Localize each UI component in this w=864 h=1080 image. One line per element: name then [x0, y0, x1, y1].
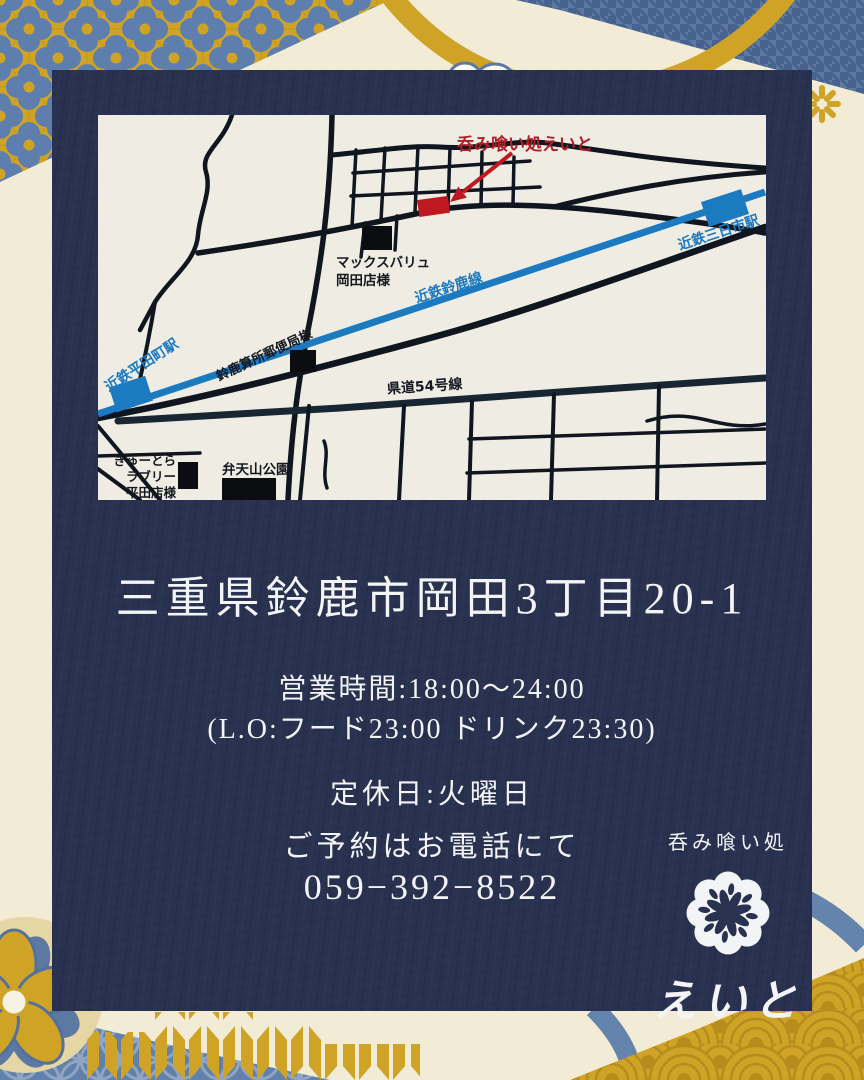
hours-block: 営業時間:18:00〜24:00 (L.O:フード23:00 ドリンク23:30…: [52, 670, 812, 750]
gyutora-building: [178, 462, 198, 489]
shop-logo: 呑み喰い処: [652, 826, 804, 1029]
map-title: 呑み喰い処えいと: [456, 134, 593, 155]
gyutora-label-1: ぎゅーとら: [114, 453, 176, 468]
blue-arc-right: [806, 901, 864, 945]
park-area: [222, 478, 276, 500]
address-text: 三重県鈴鹿市岡田3丁目20-1: [52, 562, 812, 626]
flyer: 呑み喰い処えいと マックスバリュ 岡田店様 近鉄三日市駅 近鉄鈴鹿線 近鉄平田町…: [0, 0, 864, 1080]
maxvalu-label-1: マックスバリュ: [336, 255, 430, 271]
restaurant-marker: [417, 196, 450, 217]
gyutora-label-2: ラブリー: [126, 469, 176, 484]
hours-line-1: 営業時間:18:00〜24:00: [52, 670, 812, 710]
park-label: 弁天山公園: [222, 461, 290, 478]
hours-line-2: (L.O:フード23:00 ドリンク23:30): [52, 710, 812, 750]
maxvalu-label-2: 岡田店様: [336, 272, 390, 289]
logo-name: えいと: [652, 965, 804, 1029]
yagasuri-pattern-block: [86, 1012, 420, 1080]
access-map: 呑み喰い処えいと マックスバリュ 岡田店様 近鉄三日市駅 近鉄鈴鹿線 近鉄平田町…: [98, 115, 766, 500]
info-card: 呑み喰い処えいと マックスバリュ 岡田店様 近鉄三日市駅 近鉄鈴鹿線 近鉄平田町…: [52, 70, 812, 1011]
closed-day-text: 定休日:火曜日: [52, 772, 812, 812]
logo-tagline: 呑み喰い処: [652, 826, 804, 855]
maxvalu-building: [362, 226, 392, 250]
eito-emblem-icon: [678, 863, 778, 963]
south-grid-minor: [98, 416, 765, 488]
route54-label: 県道54号線: [386, 375, 462, 397]
post-office-building: [290, 350, 316, 372]
road: [140, 115, 232, 330]
gyutora-label-3: 平田店様: [126, 485, 177, 500]
